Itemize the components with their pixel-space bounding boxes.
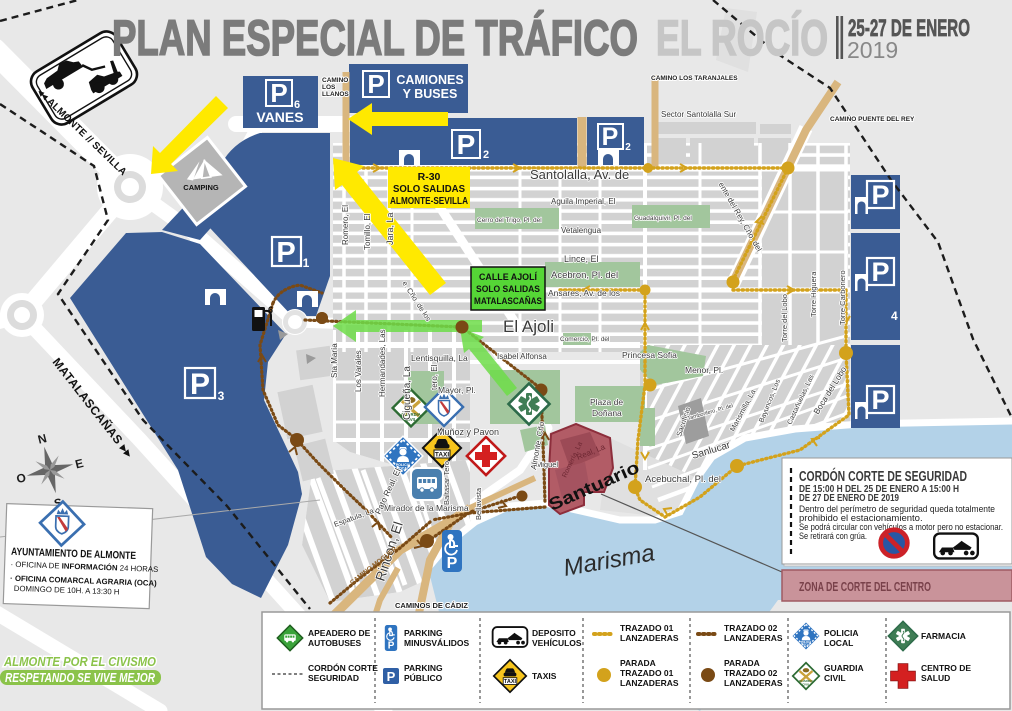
svg-text:PARKING: PARKING xyxy=(404,663,443,673)
svg-text:CAMINO LOS TARANJALES: CAMINO LOS TARANJALES xyxy=(651,75,738,82)
svg-text:4: 4 xyxy=(891,309,898,323)
svg-text:LANZADERAS: LANZADERAS xyxy=(620,633,679,643)
svg-text:LANZADERAS: LANZADERAS xyxy=(724,678,783,688)
svg-text:PLAN ESPECIAL DE TRÁFICO: PLAN ESPECIAL DE TRÁFICO xyxy=(112,10,638,66)
svg-text:RESPETANDO SE VIVE MEJOR: RESPETANDO SE VIVE MEJOR xyxy=(5,670,155,685)
svg-text:LOS: LOS xyxy=(322,84,336,91)
svg-text:MATALASCAÑAS: MATALASCAÑAS xyxy=(474,296,542,307)
svg-text:VANES: VANES xyxy=(256,109,303,125)
svg-text:LANZADERAS: LANZADERAS xyxy=(724,633,783,643)
svg-text:Torre Carbonero: Torre Carbonero xyxy=(838,270,847,325)
svg-text:SOLO SALIDAS: SOLO SALIDAS xyxy=(393,183,465,195)
svg-text:CENTRO DE: CENTRO DE xyxy=(921,663,971,673)
svg-text:Torre Higuera: Torre Higuera xyxy=(809,271,818,317)
svg-text:Vetalengua: Vetalengua xyxy=(561,226,602,235)
svg-text:Bellavista: Bellavista xyxy=(474,487,483,520)
svg-text:Jara, La: Jara, La xyxy=(385,212,395,245)
svg-text:TRAZADO 01: TRAZADO 01 xyxy=(620,623,674,633)
svg-text:Ansares, Av. de los: Ansares, Av. de los xyxy=(548,288,620,298)
svg-text:ALMONTE-SEVILLA: ALMONTE-SEVILLA xyxy=(390,195,468,207)
svg-text:Aguila Imperial, El: Aguila Imperial, El xyxy=(551,197,616,206)
svg-text:P: P xyxy=(871,257,889,287)
svg-text:P: P xyxy=(602,123,619,151)
svg-text:POLICIA: POLICIA xyxy=(824,628,858,638)
svg-text:P: P xyxy=(387,669,396,684)
svg-text:CORDÓN CORTE DE SEGURIDAD: CORDÓN CORTE DE SEGURIDAD xyxy=(799,467,967,485)
svg-text:ZONA DE CORTE DEL CENTRO: ZONA DE CORTE DEL CENTRO xyxy=(799,579,931,594)
svg-text:AUTOBUSES: AUTOBUSES xyxy=(308,638,362,648)
svg-text:Hermandades, Las: Hermandades, Las xyxy=(378,329,387,397)
svg-text:Princesa Sofia: Princesa Sofia xyxy=(622,350,677,360)
svg-text:Y BUSES: Y BUSES xyxy=(403,87,458,101)
svg-text:Romero, El: Romero, El xyxy=(341,205,350,245)
svg-text:DEPOSITO: DEPOSITO xyxy=(532,628,576,638)
svg-text:PARKING: PARKING xyxy=(404,628,443,638)
svg-text:1: 1 xyxy=(303,256,310,270)
svg-text:VEHÍCULOS: VEHÍCULOS xyxy=(532,638,582,648)
svg-text:CAMIONES: CAMIONES xyxy=(396,73,463,87)
svg-text:Doñana: Doñana xyxy=(592,408,622,418)
svg-text:FARMACIA: FARMACIA xyxy=(921,631,966,641)
svg-text:APEADERO DE: APEADERO DE xyxy=(308,628,371,638)
svg-text:DE 27 DE ENERO DE 2019: DE 27 DE ENERO DE 2019 xyxy=(799,493,899,504)
svg-text:SOLO SALIDAS: SOLO SALIDAS xyxy=(476,284,540,295)
svg-text:Guadalquivir, Pl. del: Guadalquivir, Pl. del xyxy=(634,215,692,222)
svg-text:SALUD: SALUD xyxy=(921,673,950,683)
svg-text:P: P xyxy=(871,180,889,210)
svg-text:Se retirará con grúa.: Se retirará con grúa. xyxy=(799,531,867,542)
svg-text:P: P xyxy=(276,237,295,269)
svg-text:P: P xyxy=(871,385,889,415)
svg-text:Mirador de la Marisma: Mirador de la Marisma xyxy=(384,503,469,513)
svg-text:PÚBLICO: PÚBLICO xyxy=(404,672,443,683)
svg-text:El Ajoli: El Ajoli xyxy=(503,317,554,336)
svg-text:LANZADERAS: LANZADERAS xyxy=(620,678,679,688)
svg-text:EL ROCÍO: EL ROCÍO xyxy=(656,10,828,66)
svg-text:Acebuchal, Pl. del: Acebuchal, Pl. del xyxy=(645,474,721,485)
svg-text:LLANOS: LLANOS xyxy=(322,91,349,98)
svg-text:TRAZADO 01: TRAZADO 01 xyxy=(620,668,674,678)
svg-text:CIVIL: CIVIL xyxy=(824,673,846,683)
svg-text:LOCAL: LOCAL xyxy=(824,638,853,648)
svg-text:Lince, El: Lince, El xyxy=(564,254,599,264)
svg-text:Baltasar Tero: Baltasar Tero xyxy=(442,461,451,505)
svg-text:CAMINO: CAMINO xyxy=(322,77,348,84)
svg-text:Cerro del Trigo, Pl. del: Cerro del Trigo, Pl. del xyxy=(477,217,542,224)
svg-text:Los Varales: Los Varales xyxy=(354,350,363,392)
svg-text:CAMINOS DE CÁDIZ: CAMINOS DE CÁDIZ xyxy=(395,601,468,610)
svg-text:Menor, Pl.: Menor, Pl. xyxy=(685,365,723,375)
svg-text:Sta María: Sta María xyxy=(330,343,339,378)
svg-text:3: 3 xyxy=(218,389,225,403)
svg-text:Comercio, Pl. del: Comercio, Pl. del xyxy=(560,336,610,343)
svg-text:Santolalla, Av. de: Santolalla, Av. de xyxy=(530,167,629,182)
svg-text:TAXIS: TAXIS xyxy=(532,671,557,681)
svg-text:CAMINO PUENTE DEL REY: CAMINO PUENTE DEL REY xyxy=(830,116,915,123)
svg-text:Torre del Lobo: Torre del Lobo xyxy=(780,294,789,342)
svg-text:Mayor, Pl.: Mayor, Pl. xyxy=(438,385,476,395)
svg-text:GUARDIA: GUARDIA xyxy=(824,663,864,673)
svg-text:Acebron, Pl. del: Acebron, Pl. del xyxy=(551,270,618,281)
svg-text:P: P xyxy=(367,69,384,99)
svg-text:Lentisquilla, La: Lentisquilla, La xyxy=(411,353,468,363)
svg-text:6: 6 xyxy=(268,305,273,315)
svg-text:Sector Santolalla Sur: Sector Santolalla Sur xyxy=(661,110,736,119)
svg-text:MINUSVÁLIDOS: MINUSVÁLIDOS xyxy=(404,638,470,648)
svg-text:P: P xyxy=(270,78,287,108)
svg-text:tero, El: tero, El xyxy=(430,364,439,390)
svg-text:CORDÓN CORTE: CORDÓN CORTE xyxy=(308,662,378,673)
svg-text:PARADA: PARADA xyxy=(724,658,760,668)
svg-text:TRAZADO 02: TRAZADO 02 xyxy=(724,668,778,678)
svg-text:2019: 2019 xyxy=(847,37,898,63)
svg-text:ALMONTE POR EL CIVISMO: ALMONTE POR EL CIVISMO xyxy=(3,654,156,669)
svg-text:P: P xyxy=(457,129,476,160)
svg-text:Tomillo, El: Tomillo, El xyxy=(363,213,372,250)
svg-text:Plaza de: Plaza de xyxy=(590,397,623,407)
svg-text:CAMPING: CAMPING xyxy=(183,183,219,192)
svg-text:P: P xyxy=(190,368,210,401)
svg-text:TRAZADO 02: TRAZADO 02 xyxy=(724,623,778,633)
svg-text:CALLE AJOLÍ: CALLE AJOLÍ xyxy=(479,272,537,283)
svg-text:Muñoz y Pavon: Muñoz y Pavon xyxy=(437,427,499,437)
svg-text:Isabel Alfonsa: Isabel Alfonsa xyxy=(497,352,547,361)
svg-text:2: 2 xyxy=(625,142,631,153)
svg-text:2: 2 xyxy=(483,149,489,161)
svg-text:SEGURIDAD: SEGURIDAD xyxy=(308,673,359,683)
svg-text:Cigueña, La: Cigueña, La xyxy=(402,366,413,420)
svg-text:R-30: R-30 xyxy=(418,171,441,183)
svg-text:PARADA: PARADA xyxy=(620,658,656,668)
